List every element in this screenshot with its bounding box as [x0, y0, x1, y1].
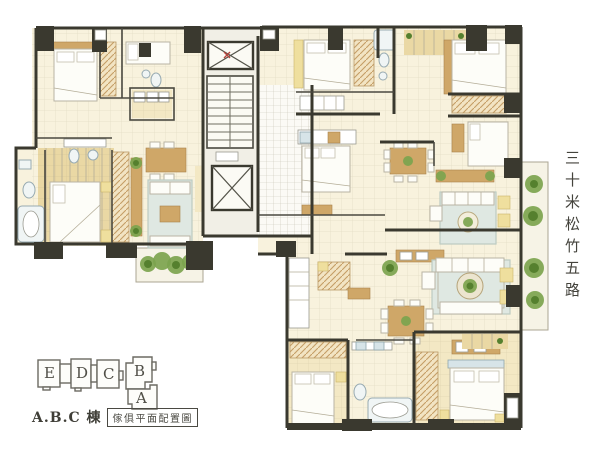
road-name-label: 三十米松竹五路 [562, 150, 583, 304]
keyplan-unit-label-d: D [76, 366, 88, 381]
floor-plan-drawing [0, 0, 600, 456]
keyplan-unit-label-c: C [103, 367, 114, 382]
plan-caption-row: A.B.C 棟 傢俱平面配置圖 [32, 407, 198, 427]
keyplan-unit-label-e: E [44, 366, 55, 381]
floor-plan-page: 三十米松竹五路 E D C B A A.B.C 棟 傢俱平面配置圖 [0, 0, 600, 456]
keyplan-unit-label-b: B [134, 364, 145, 379]
keyplan-unit-label-a: A [136, 391, 147, 406]
building-label: A.B.C 棟 [32, 407, 101, 427]
plan-caption-box: 傢俱平面配置圖 [107, 408, 198, 427]
